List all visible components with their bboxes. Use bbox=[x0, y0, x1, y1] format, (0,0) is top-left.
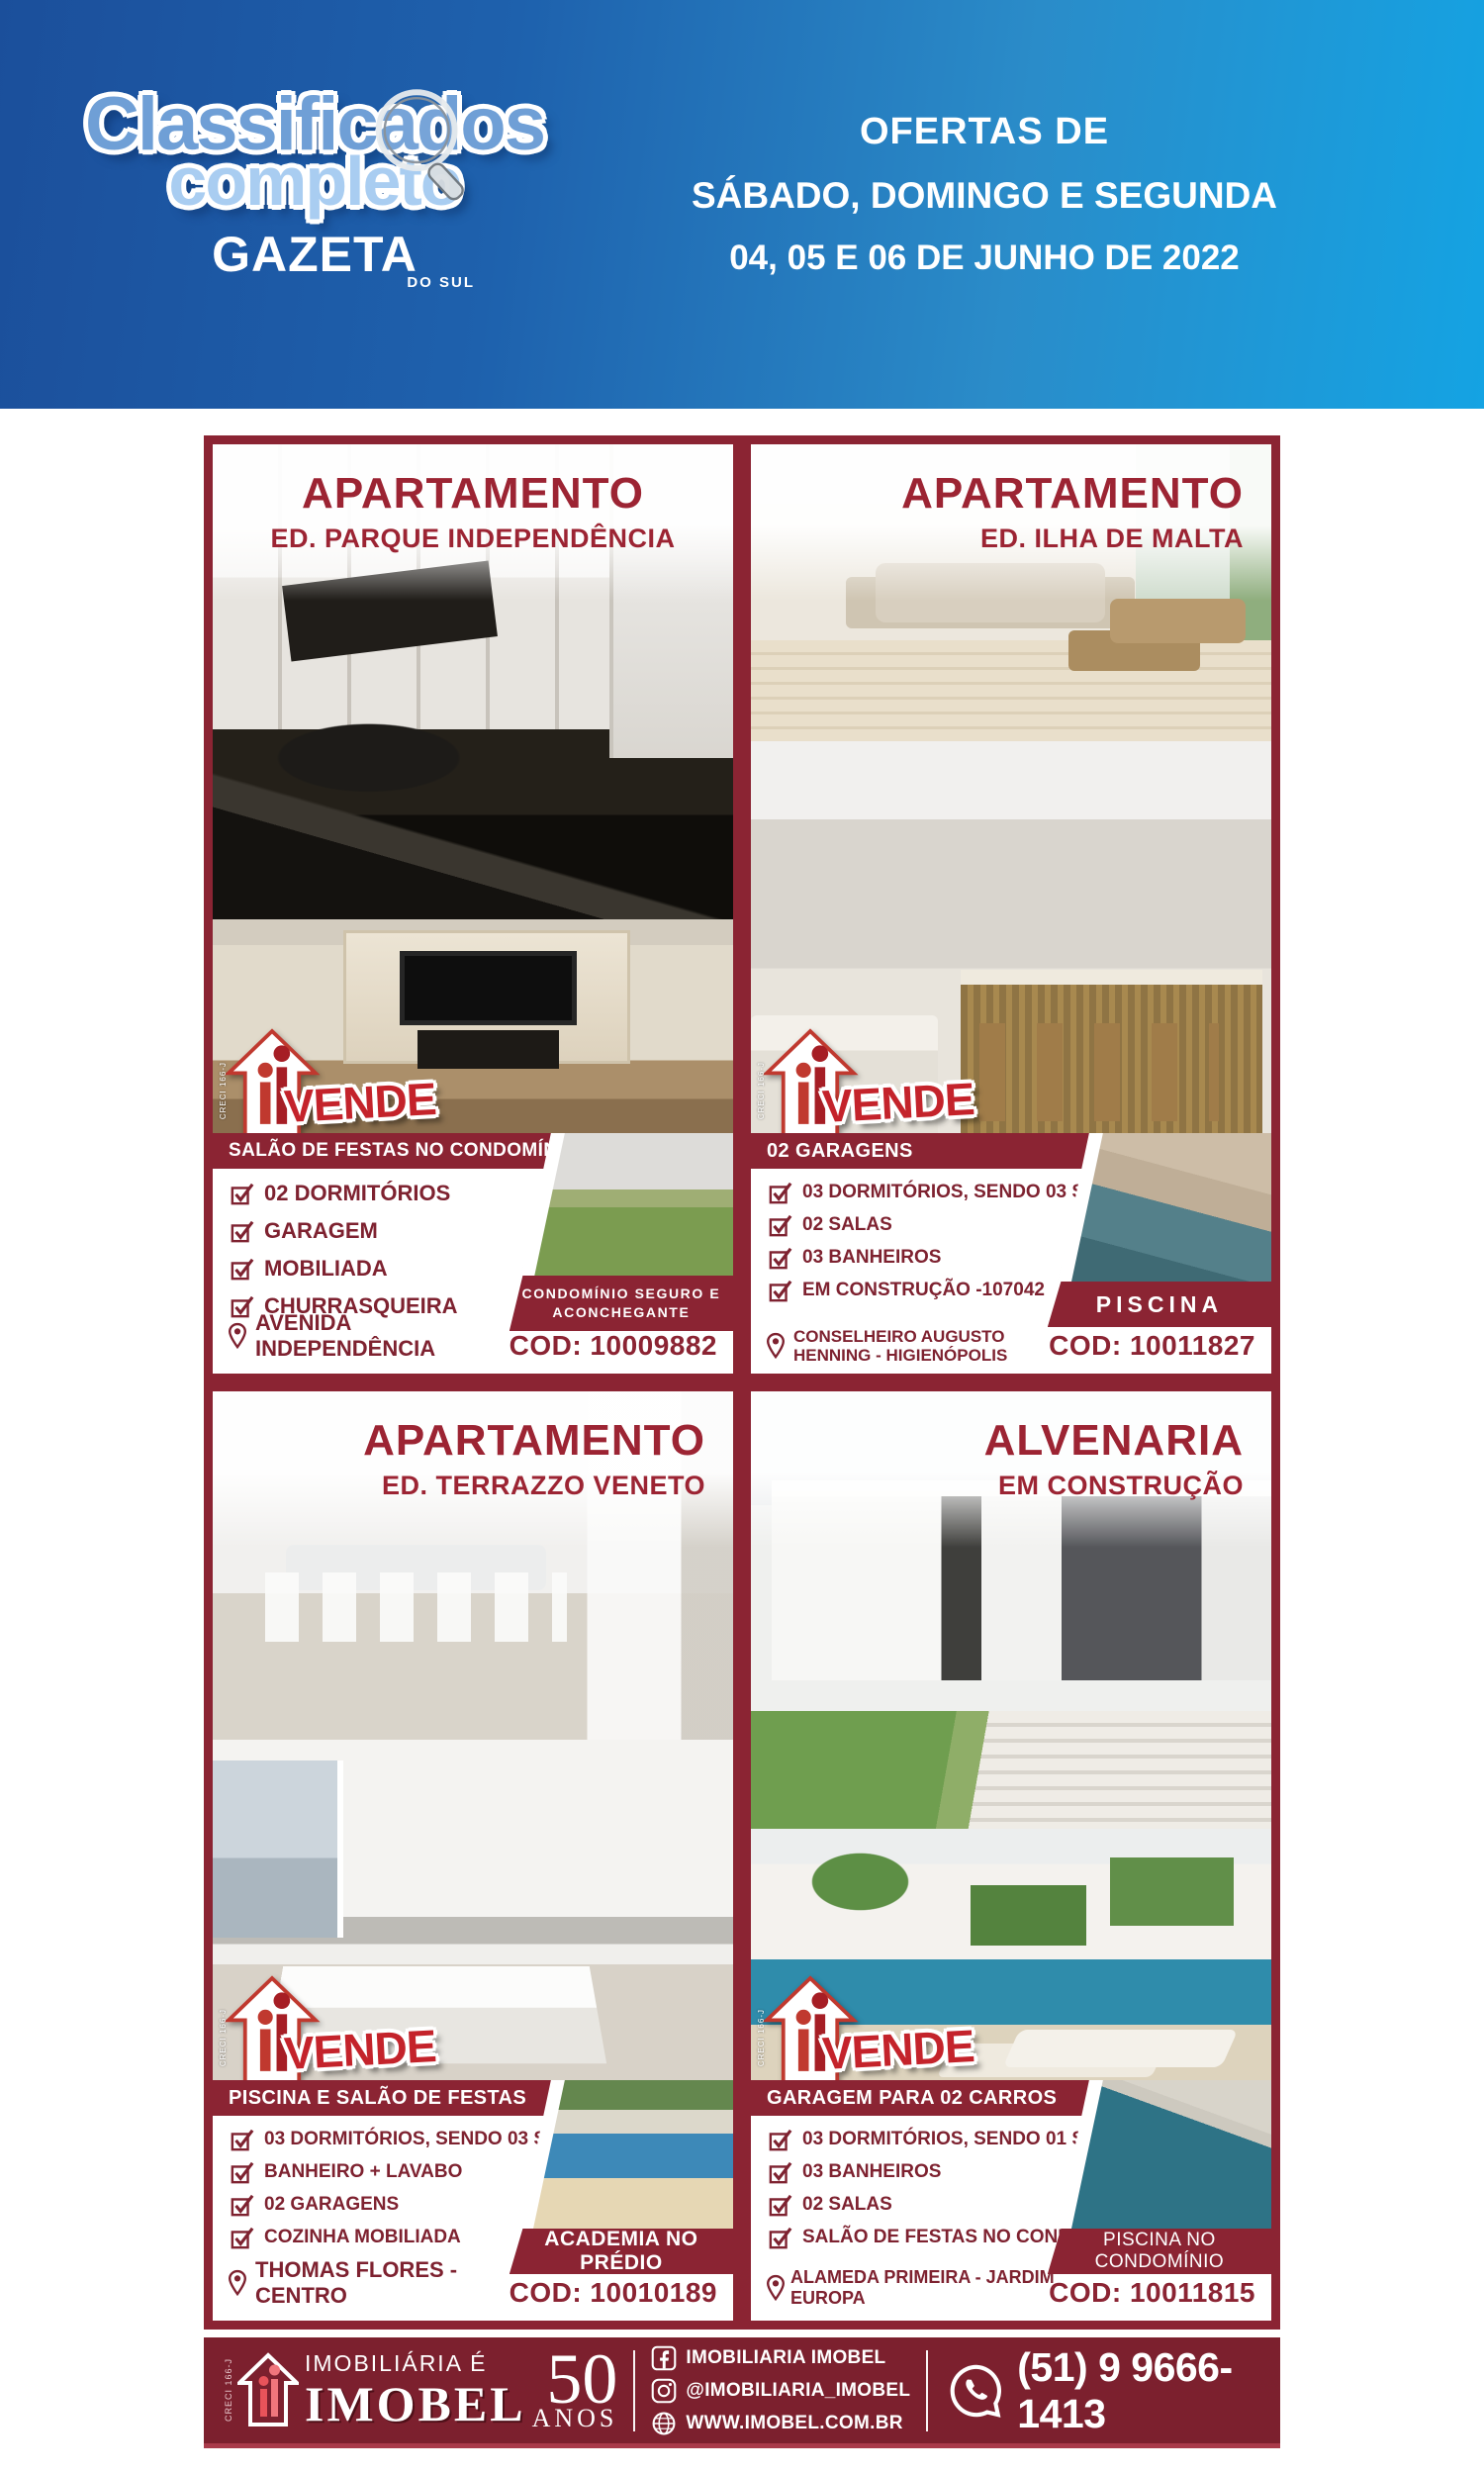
photo-kitchen-bar-render: CRECI 166-J VENDE bbox=[751, 741, 1271, 1133]
listing-location: CONSELHEIRO AUGUSTO HENNING - HIGIENÓPOL… bbox=[765, 1327, 1046, 1366]
highlight-badge-label: PISCINA bbox=[1096, 1291, 1223, 1318]
vende-creci-label: CRECI 166-J bbox=[757, 2009, 766, 2066]
feature-text: COZINHA MOBILIADA bbox=[264, 2227, 461, 2248]
feature-text: 02 GARAGENS bbox=[264, 2194, 399, 2216]
social-links: IMOBILIARIA IMOBEL @IMOBILIARIA_IMOBEL W… bbox=[651, 2345, 910, 2436]
listings-grid: APARTAMENTO ED. PARQUE INDEPENDÊNCIA CRE… bbox=[204, 435, 1280, 2330]
listing-subtitle: EM CONSTRUÇÃO bbox=[751, 1471, 1244, 1501]
checkbox-icon bbox=[231, 2226, 254, 2249]
listing-location: THOMAS FLORES - CENTRO bbox=[227, 2257, 518, 2309]
page-header: Classificados completo GAZETA DO SUL OFE… bbox=[0, 0, 1484, 409]
checkbox-icon bbox=[769, 1181, 792, 1204]
feature-text: 03 BANHEIROS bbox=[802, 2161, 941, 2183]
listing-title-block: APARTAMENTO ED. PARQUE INDEPENDÊNCIA bbox=[213, 444, 733, 601]
feature-item: EM CONSTRUÇÃO -107042 bbox=[769, 1279, 1064, 1302]
vende-badge: CRECI 166-J VENDE bbox=[221, 1028, 448, 1133]
feature-list: 03 DORMITÓRIOS, SENDO 03 SUÍTES 02 SALAS… bbox=[769, 1181, 1064, 1311]
globe-icon bbox=[651, 2411, 677, 2436]
footer-divider bbox=[926, 2350, 928, 2431]
listing-card-parque-independencia: APARTAMENTO ED. PARQUE INDEPENDÊNCIA CRE… bbox=[204, 435, 742, 1382]
feature-list: 03 DORMITÓRIOS, SENDO 01 SUÍTE 03 BANHEI… bbox=[769, 2128, 1064, 2258]
feature-text: MOBILIADA bbox=[264, 1256, 388, 1282]
location-text: ALAMEDA PRIMEIRA - JARDIM EUROPA bbox=[790, 2267, 1077, 2309]
listing-subtitle: ED. PARQUE INDEPENDÊNCIA bbox=[213, 523, 733, 554]
listing-subtitle: ED. TERRAZZO VENETO bbox=[213, 1471, 705, 1501]
listing-details: SALÃO DE FESTAS NO CONDOMÍNIO CONDOMÍNIO… bbox=[213, 1133, 733, 1374]
magnifier-icon bbox=[362, 73, 481, 222]
vende-creci-label: CRECI 166-J bbox=[219, 1062, 228, 1119]
feature-item: GARAGEM bbox=[231, 1218, 525, 1244]
instagram-icon bbox=[651, 2378, 677, 2404]
imobel-house-icon bbox=[237, 2351, 299, 2428]
listing-title: ALVENARIA bbox=[751, 1417, 1244, 1465]
years-number: 50 bbox=[546, 2351, 617, 2409]
listing-location: AVENIDA INDEPENDÊNCIA bbox=[227, 1310, 518, 1362]
photo-living-room-tv: CRECI 166-J VENDE bbox=[213, 919, 733, 1133]
checkbox-icon bbox=[769, 2226, 792, 2249]
checkbox-icon bbox=[769, 1279, 792, 1302]
gazeta-logo: GAZETA DO SUL bbox=[77, 230, 552, 290]
classificados-logo: Classificados completo GAZETA DO SUL bbox=[77, 87, 552, 290]
feature-list: 02 DORMITÓRIOS GARAGEM MOBILIADA CHURRAS… bbox=[231, 1181, 525, 1331]
instagram-row: @IMOBILIARIA_IMOBEL bbox=[651, 2378, 910, 2404]
checkbox-icon bbox=[769, 2160, 792, 2184]
feature-item: 03 BANHEIROS bbox=[769, 1246, 1064, 1270]
vende-badge: CRECI 166-J VENDE bbox=[759, 1028, 986, 1133]
listing-subtitle: ED. ILHA DE MALTA bbox=[751, 523, 1244, 554]
years-label: ANOS bbox=[532, 2409, 618, 2429]
checkbox-icon bbox=[231, 1182, 254, 1205]
checkbox-icon bbox=[769, 1213, 792, 1237]
photo-kitchen: APARTAMENTO ED. PARQUE INDEPENDÊNCIA bbox=[213, 444, 733, 919]
facebook-handle: IMOBILIARIA IMOBEL bbox=[686, 2347, 885, 2369]
feature-item: MOBILIADA bbox=[231, 1256, 525, 1282]
fifty-years-badge: 50 ANOS bbox=[532, 2351, 618, 2428]
feature-text: 02 SALAS bbox=[802, 1214, 892, 1236]
listing-title: APARTAMENTO bbox=[751, 470, 1244, 518]
footer-divider bbox=[633, 2350, 635, 2431]
feature-text: 03 BANHEIROS bbox=[802, 1247, 941, 1269]
feature-item: 02 DORMITÓRIOS bbox=[231, 1181, 525, 1206]
listing-title: APARTAMENTO bbox=[213, 1417, 705, 1465]
listing-details: PISCINA E SALÃO DE FESTAS ACADEMIA NO PR… bbox=[213, 2080, 733, 2321]
website-row: WWW.IMOBEL.COM.BR bbox=[651, 2411, 910, 2436]
checkbox-icon bbox=[769, 1246, 792, 1270]
offers-line2: SÁBADO, DOMINGO E SEGUNDA bbox=[594, 175, 1375, 217]
listing-card-alvenaria: ALVENARIA EM CONSTRUÇÃO CRECI 166-J VEND… bbox=[742, 1382, 1280, 2330]
checkbox-icon bbox=[231, 1219, 254, 1243]
vende-label: VENDE bbox=[821, 2019, 975, 2080]
highlight-badge-label: CONDOMÍNIO SEGURO E ACONCHEGANTE bbox=[510, 1285, 733, 1322]
map-pin-icon bbox=[765, 1332, 787, 1360]
listing-code: COD: 10011815 bbox=[1049, 2277, 1255, 2309]
listing-card-ilha-de-malta: APARTAMENTO ED. ILHA DE MALTA CRECI 166-… bbox=[742, 435, 1280, 1382]
vende-creci-label: CRECI 166-J bbox=[757, 1062, 766, 1119]
feature-item: 03 DORMITÓRIOS, SENDO 03 SUÍTES bbox=[231, 2128, 525, 2151]
listing-title-block: ALVENARIA EM CONSTRUÇÃO bbox=[751, 1391, 1271, 1548]
feature-list: 03 DORMITÓRIOS, SENDO 03 SUÍTES BANHEIRO… bbox=[231, 2128, 525, 2258]
agency-footer: CRECI 166-J IMOBILIÁRIA É IMOBEL 50 ANOS… bbox=[204, 2337, 1280, 2448]
highlight-badge: PISCINA bbox=[1048, 1282, 1271, 1327]
feature-item: BANHEIRO + LAVABO bbox=[231, 2160, 525, 2184]
map-pin-icon bbox=[227, 1322, 248, 1350]
checkbox-icon bbox=[231, 1257, 254, 1281]
vende-badge: CRECI 166-J VENDE bbox=[759, 1975, 986, 2080]
facebook-row: IMOBILIARIA IMOBEL bbox=[651, 2345, 910, 2371]
checkbox-icon bbox=[231, 2193, 254, 2217]
photo-dining-room: APARTAMENTO ED. TERRAZZO VENETO bbox=[213, 1391, 733, 1740]
map-pin-icon bbox=[765, 2274, 787, 2302]
creci-label: CRECI 166-J bbox=[224, 2358, 233, 2422]
website-url: WWW.IMOBEL.COM.BR bbox=[686, 2413, 902, 2434]
listing-location: ALAMEDA PRIMEIRA - JARDIM EUROPA bbox=[765, 2267, 1077, 2309]
vende-label: VENDE bbox=[283, 2019, 437, 2080]
map-pin-icon bbox=[227, 2269, 248, 2297]
listing-code: COD: 10011827 bbox=[1049, 1330, 1255, 1362]
offers-line1: OFERTAS DE bbox=[594, 111, 1375, 153]
classifieds-page: { "header": { "logo_line1": "Classificad… bbox=[0, 0, 1484, 2474]
highlight-badge: ACADEMIA NO PRÉDIO bbox=[510, 2229, 733, 2274]
feature-item: 02 SALAS bbox=[769, 1213, 1064, 1237]
vende-label: VENDE bbox=[283, 1072, 437, 1133]
feature-item: 03 DORMITÓRIOS, SENDO 03 SUÍTES bbox=[769, 1181, 1064, 1204]
imobel-wordmark: IMOBEL bbox=[305, 2379, 526, 2428]
photo-backyard-pool-render: CRECI 166-J VENDE bbox=[751, 1829, 1271, 2080]
location-text: AVENIDA INDEPENDÊNCIA bbox=[255, 1310, 518, 1362]
offers-block: OFERTAS DE SÁBADO, DOMINGO E SEGUNDA 04,… bbox=[594, 111, 1375, 278]
listing-card-terrazzo-veneto: APARTAMENTO ED. TERRAZZO VENETO CRECI 16… bbox=[204, 1382, 742, 2330]
highlight-badge: PISCINA NO CONDOMÍNIO bbox=[1048, 2229, 1271, 2274]
listing-details: 02 GARAGENS PISCINA 03 DORMITÓRIOS, SEND… bbox=[751, 1133, 1271, 1374]
imobel-logo: CRECI 166-J IMOBILIÁRIA É IMOBEL 50 ANOS bbox=[224, 2351, 617, 2428]
feature-item: 03 DORMITÓRIOS, SENDO 01 SUÍTE bbox=[769, 2128, 1064, 2151]
photo-living-room-table: CRECI 166-J VENDE bbox=[213, 1740, 733, 2080]
whatsapp-icon bbox=[948, 2362, 1005, 2420]
imobel-brand-block: IMOBILIÁRIA É IMOBEL bbox=[305, 2352, 526, 2428]
highlight-badge-label: ACADEMIA NO PRÉDIO bbox=[510, 2228, 733, 2275]
location-text: CONSELHEIRO AUGUSTO HENNING - HIGIENÓPOL… bbox=[793, 1327, 1046, 1366]
feature-text: 02 SALAS bbox=[802, 2194, 892, 2216]
highlight-badge-label: PISCINA NO CONDOMÍNIO bbox=[1048, 2230, 1271, 2273]
checkbox-icon bbox=[231, 2160, 254, 2184]
listing-code: COD: 10010189 bbox=[510, 2277, 717, 2309]
location-text: THOMAS FLORES - CENTRO bbox=[255, 2257, 518, 2309]
highlight-badge: CONDOMÍNIO SEGURO E ACONCHEGANTE bbox=[510, 1276, 733, 1331]
vende-badge: CRECI 166-J VENDE bbox=[221, 1975, 448, 2080]
photo-house-exterior-render: ALVENARIA EM CONSTRUÇÃO bbox=[751, 1391, 1271, 1829]
feature-text: EM CONSTRUÇÃO -107042 bbox=[802, 1280, 1045, 1301]
feature-text: GARAGEM bbox=[264, 1218, 378, 1244]
vende-creci-label: CRECI 166-J bbox=[219, 2009, 228, 2066]
feature-item: 02 GARAGENS bbox=[231, 2193, 525, 2217]
imobel-tagline: IMOBILIÁRIA É bbox=[305, 2352, 526, 2375]
listing-title-block: APARTAMENTO ED. TERRAZZO VENETO bbox=[213, 1391, 733, 1548]
listing-details: GARAGEM PARA 02 CARROS PISCINA NO CONDOM… bbox=[751, 2080, 1271, 2321]
checkbox-icon bbox=[231, 2128, 254, 2151]
listing-title: APARTAMENTO bbox=[213, 470, 733, 518]
photo-living-room-render: APARTAMENTO ED. ILHA DE MALTA bbox=[751, 444, 1271, 741]
phone-block: (51) 9 9666-1413 bbox=[948, 2344, 1260, 2437]
checkbox-icon bbox=[769, 2128, 792, 2151]
feature-text: 02 DORMITÓRIOS bbox=[264, 1181, 450, 1206]
gazeta-wordmark: GAZETA bbox=[212, 227, 417, 282]
feature-item: 02 SALAS bbox=[769, 2193, 1064, 2217]
feature-item: COZINHA MOBILIADA bbox=[231, 2226, 525, 2249]
instagram-handle: @IMOBILIARIA_IMOBEL bbox=[686, 2380, 910, 2402]
checkbox-icon bbox=[769, 2193, 792, 2217]
feature-item: 03 BANHEIROS bbox=[769, 2160, 1064, 2184]
offers-line3: 04, 05 E 06 DE JUNHO DE 2022 bbox=[594, 238, 1375, 278]
phone-number: (51) 9 9666-1413 bbox=[1017, 2344, 1260, 2437]
listing-code: COD: 10009882 bbox=[510, 1330, 717, 1362]
feature-item: SALÃO DE FESTAS NO CONDOMÍNIO bbox=[769, 2226, 1064, 2249]
facebook-icon bbox=[651, 2345, 677, 2371]
feature-text: BANHEIRO + LAVABO bbox=[264, 2161, 462, 2183]
vende-label: VENDE bbox=[821, 1072, 975, 1133]
listing-title-block: APARTAMENTO ED. ILHA DE MALTA bbox=[751, 444, 1271, 601]
